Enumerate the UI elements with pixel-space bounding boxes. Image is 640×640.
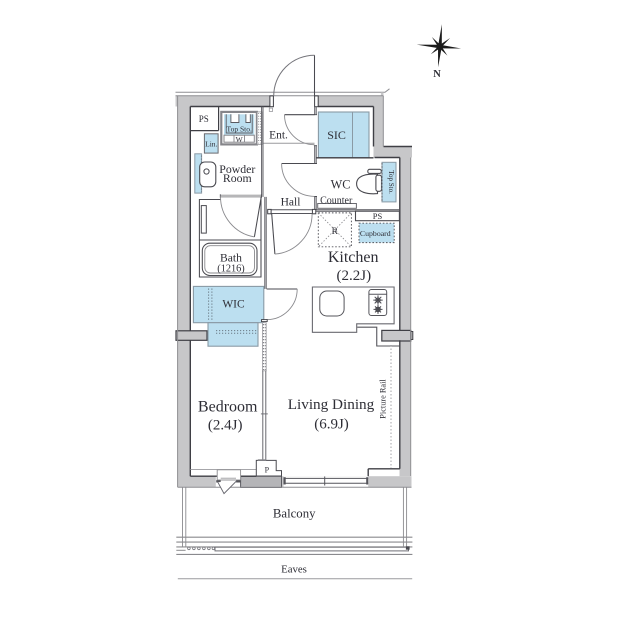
svg-text:Balcony: Balcony: [273, 506, 316, 520]
svg-text:Picture Rail: Picture Rail: [379, 379, 388, 419]
svg-text:(2.2J): (2.2J): [337, 268, 372, 284]
svg-text:Room: Room: [223, 171, 252, 185]
svg-text:Counter: Counter: [320, 195, 353, 206]
svg-text:(2.4J): (2.4J): [208, 418, 243, 434]
svg-text:SIC: SIC: [327, 128, 346, 142]
svg-text:PS: PS: [199, 114, 209, 124]
svg-text:Lin.: Lin.: [205, 140, 217, 149]
svg-text:Ent.: Ent.: [269, 130, 288, 142]
svg-text:(6.9J): (6.9J): [314, 417, 349, 433]
svg-text:P: P: [265, 465, 270, 474]
svg-text:Bedroom: Bedroom: [198, 399, 258, 416]
svg-text:N: N: [433, 69, 441, 80]
svg-text:WIC: WIC: [222, 299, 245, 311]
svg-text:Eaves: Eaves: [281, 563, 307, 575]
svg-text:Cupboard: Cupboard: [360, 229, 391, 238]
svg-text:R: R: [332, 227, 339, 237]
svg-text:Bath: Bath: [220, 251, 242, 264]
svg-text:Hall: Hall: [281, 196, 301, 208]
svg-text:(1216): (1216): [217, 264, 244, 275]
svg-text:Kitchen: Kitchen: [328, 249, 379, 266]
svg-text:W: W: [236, 135, 244, 144]
svg-text:Living Dining: Living Dining: [288, 396, 375, 413]
svg-text:PS: PS: [373, 211, 383, 221]
svg-text:Top Sto.: Top Sto.: [227, 124, 252, 133]
svg-text:Top Sto.: Top Sto.: [387, 170, 395, 194]
svg-text:WC: WC: [331, 177, 351, 191]
